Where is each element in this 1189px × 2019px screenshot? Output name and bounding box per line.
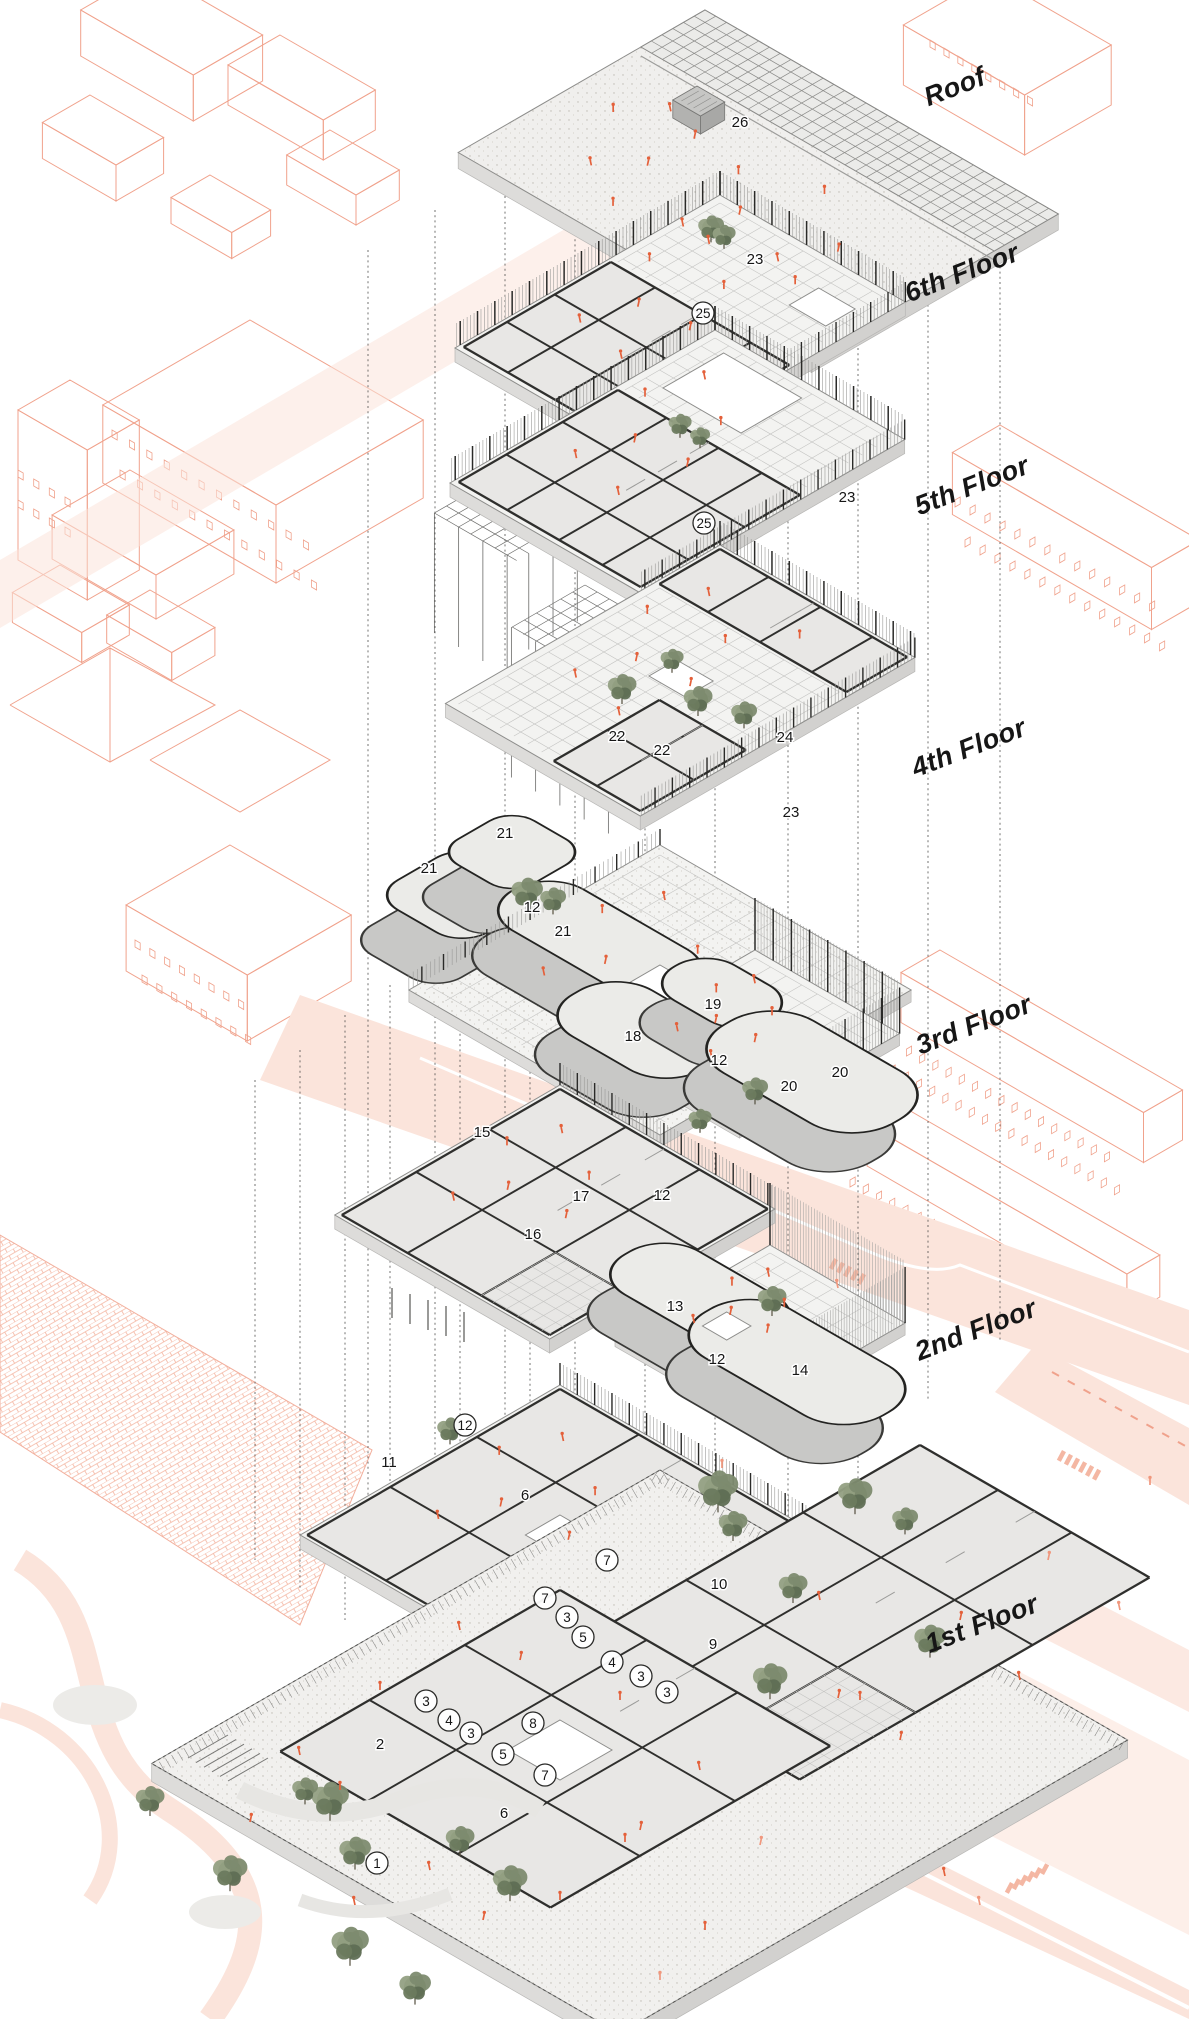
room-number: 12 (709, 1351, 726, 1368)
room-number: 4 (608, 1655, 616, 1670)
room-number: 11 (381, 1454, 397, 1471)
room-number: 3 (563, 1610, 571, 1625)
room-number-marker: 16 (525, 1226, 542, 1243)
room-number-marker: 4 (438, 1709, 460, 1731)
floor-label: 3rd Floor (912, 988, 1037, 1060)
room-number-marker: 23 (783, 804, 800, 821)
room-number-marker: 7 (534, 1587, 556, 1609)
floor-label: 5th Floor (910, 450, 1034, 521)
room-number: 15 (474, 1124, 491, 1141)
room-number: 24 (777, 729, 794, 746)
room-number: 23 (839, 489, 856, 506)
room-number: 22 (609, 728, 626, 745)
room-number: 22 (654, 742, 671, 759)
exploded-axonometric-diagram: 2623252325222224232121122119181220201517… (0, 0, 1189, 2019)
tree-icon (399, 1972, 431, 2005)
room-number-marker: 26 (732, 114, 749, 131)
room-number: 26 (732, 114, 749, 131)
room-number-marker: 20 (781, 1078, 798, 1095)
room-number: 8 (529, 1716, 537, 1731)
room-number: 21 (497, 825, 514, 842)
room-number-marker: 4 (601, 1651, 623, 1673)
room-number: 3 (663, 1685, 671, 1700)
room-number-marker: 7 (596, 1549, 618, 1571)
room-number-marker: 7 (534, 1764, 556, 1786)
room-number: 23 (783, 804, 800, 821)
room-number-marker: 12 (711, 1052, 728, 1069)
room-number-marker: 23 (747, 251, 764, 268)
person-icon (1117, 1601, 1120, 1610)
room-number-marker: 1 (366, 1852, 388, 1874)
room-number-marker: 5 (492, 1743, 514, 1765)
room-number: 4 (445, 1713, 453, 1728)
room-number-marker: 25 (693, 512, 715, 534)
room-number: 18 (625, 1028, 642, 1045)
room-number: 3 (422, 1694, 430, 1709)
room-number-marker: 15 (474, 1124, 491, 1141)
room-number-marker: 24 (777, 729, 794, 746)
room-number: 5 (579, 1630, 587, 1645)
room-number: 1 (373, 1856, 381, 1871)
room-number: 12 (654, 1187, 671, 1204)
room-number: 7 (541, 1591, 549, 1606)
room-number-marker: 3 (656, 1681, 678, 1703)
room-number: 12 (457, 1418, 472, 1433)
room-number: 6 (500, 1805, 508, 1822)
room-number-marker: 3 (630, 1665, 652, 1687)
room-number-marker: 21 (497, 825, 514, 842)
room-number-marker: 11 (381, 1454, 397, 1471)
room-number: 14 (792, 1362, 809, 1379)
room-number-marker: 20 (832, 1064, 849, 1081)
room-number-marker: 12 (654, 1187, 671, 1204)
room-number: 12 (711, 1052, 728, 1069)
room-number: 9 (709, 1636, 717, 1653)
person-icon (352, 1896, 355, 1905)
room-number-marker: 3 (460, 1722, 482, 1744)
room-number: 12 (524, 899, 541, 916)
room-number-marker: 6 (521, 1487, 529, 1504)
room-number-marker: 12 (709, 1351, 726, 1368)
room-number: 20 (781, 1078, 798, 1095)
room-number-marker: 22 (654, 742, 671, 759)
room-number-marker: 9 (709, 1636, 717, 1653)
room-number-marker: 6 (500, 1805, 508, 1822)
room-number: 7 (541, 1768, 549, 1783)
room-number: 21 (555, 923, 572, 940)
room-number: 21 (421, 860, 438, 877)
room-number-marker: 17 (573, 1188, 590, 1205)
room-number-marker: 12 (454, 1414, 476, 1436)
floor-labels-layer: Roof6th Floor5th Floor4th Floor3rd Floor… (900, 60, 1043, 1659)
tree-icon (332, 1927, 369, 1966)
room-number: 17 (573, 1188, 590, 1205)
room-number: 5 (499, 1747, 507, 1762)
room-number-marker: 5 (572, 1626, 594, 1648)
room-number: 13 (667, 1298, 684, 1315)
person-icon (720, 1459, 723, 1468)
room-number-marker: 18 (625, 1028, 642, 1045)
room-number-marker: 21 (421, 860, 438, 877)
room-number-marker: 2 (376, 1736, 384, 1753)
room-number: 23 (747, 251, 764, 268)
room-number-marker: 14 (792, 1362, 809, 1379)
room-number: 10 (711, 1576, 728, 1593)
room-number-marker: 21 (555, 923, 572, 940)
room-number: 7 (603, 1553, 611, 1568)
tree-icon (689, 1109, 712, 1133)
room-number-marker: 25 (692, 302, 714, 324)
room-number: 20 (832, 1064, 849, 1081)
floor-label: 4th Floor (906, 712, 1031, 784)
room-number-marker: 3 (556, 1606, 578, 1628)
room-number: 19 (705, 996, 722, 1013)
room-number: 25 (695, 306, 710, 321)
room-number-marker: 19 (705, 996, 722, 1013)
diagram-scene: 2623252325222224232121122119181220201517… (0, 0, 1189, 2019)
room-number-marker: 3 (415, 1690, 437, 1712)
room-number-marker: 22 (609, 728, 626, 745)
room-number: 25 (696, 516, 711, 531)
room-number: 6 (521, 1487, 529, 1504)
room-number-marker: 13 (667, 1298, 684, 1315)
room-number: 2 (376, 1736, 384, 1753)
room-number-marker: 12 (524, 899, 541, 916)
room-number: 3 (637, 1669, 645, 1684)
room-number-marker: 23 (839, 489, 856, 506)
room-number-marker: 8 (522, 1712, 544, 1734)
floor-label: Roof (920, 60, 992, 112)
room-number: 3 (467, 1726, 475, 1741)
room-number-marker: 10 (711, 1576, 728, 1593)
room-number: 16 (525, 1226, 542, 1243)
